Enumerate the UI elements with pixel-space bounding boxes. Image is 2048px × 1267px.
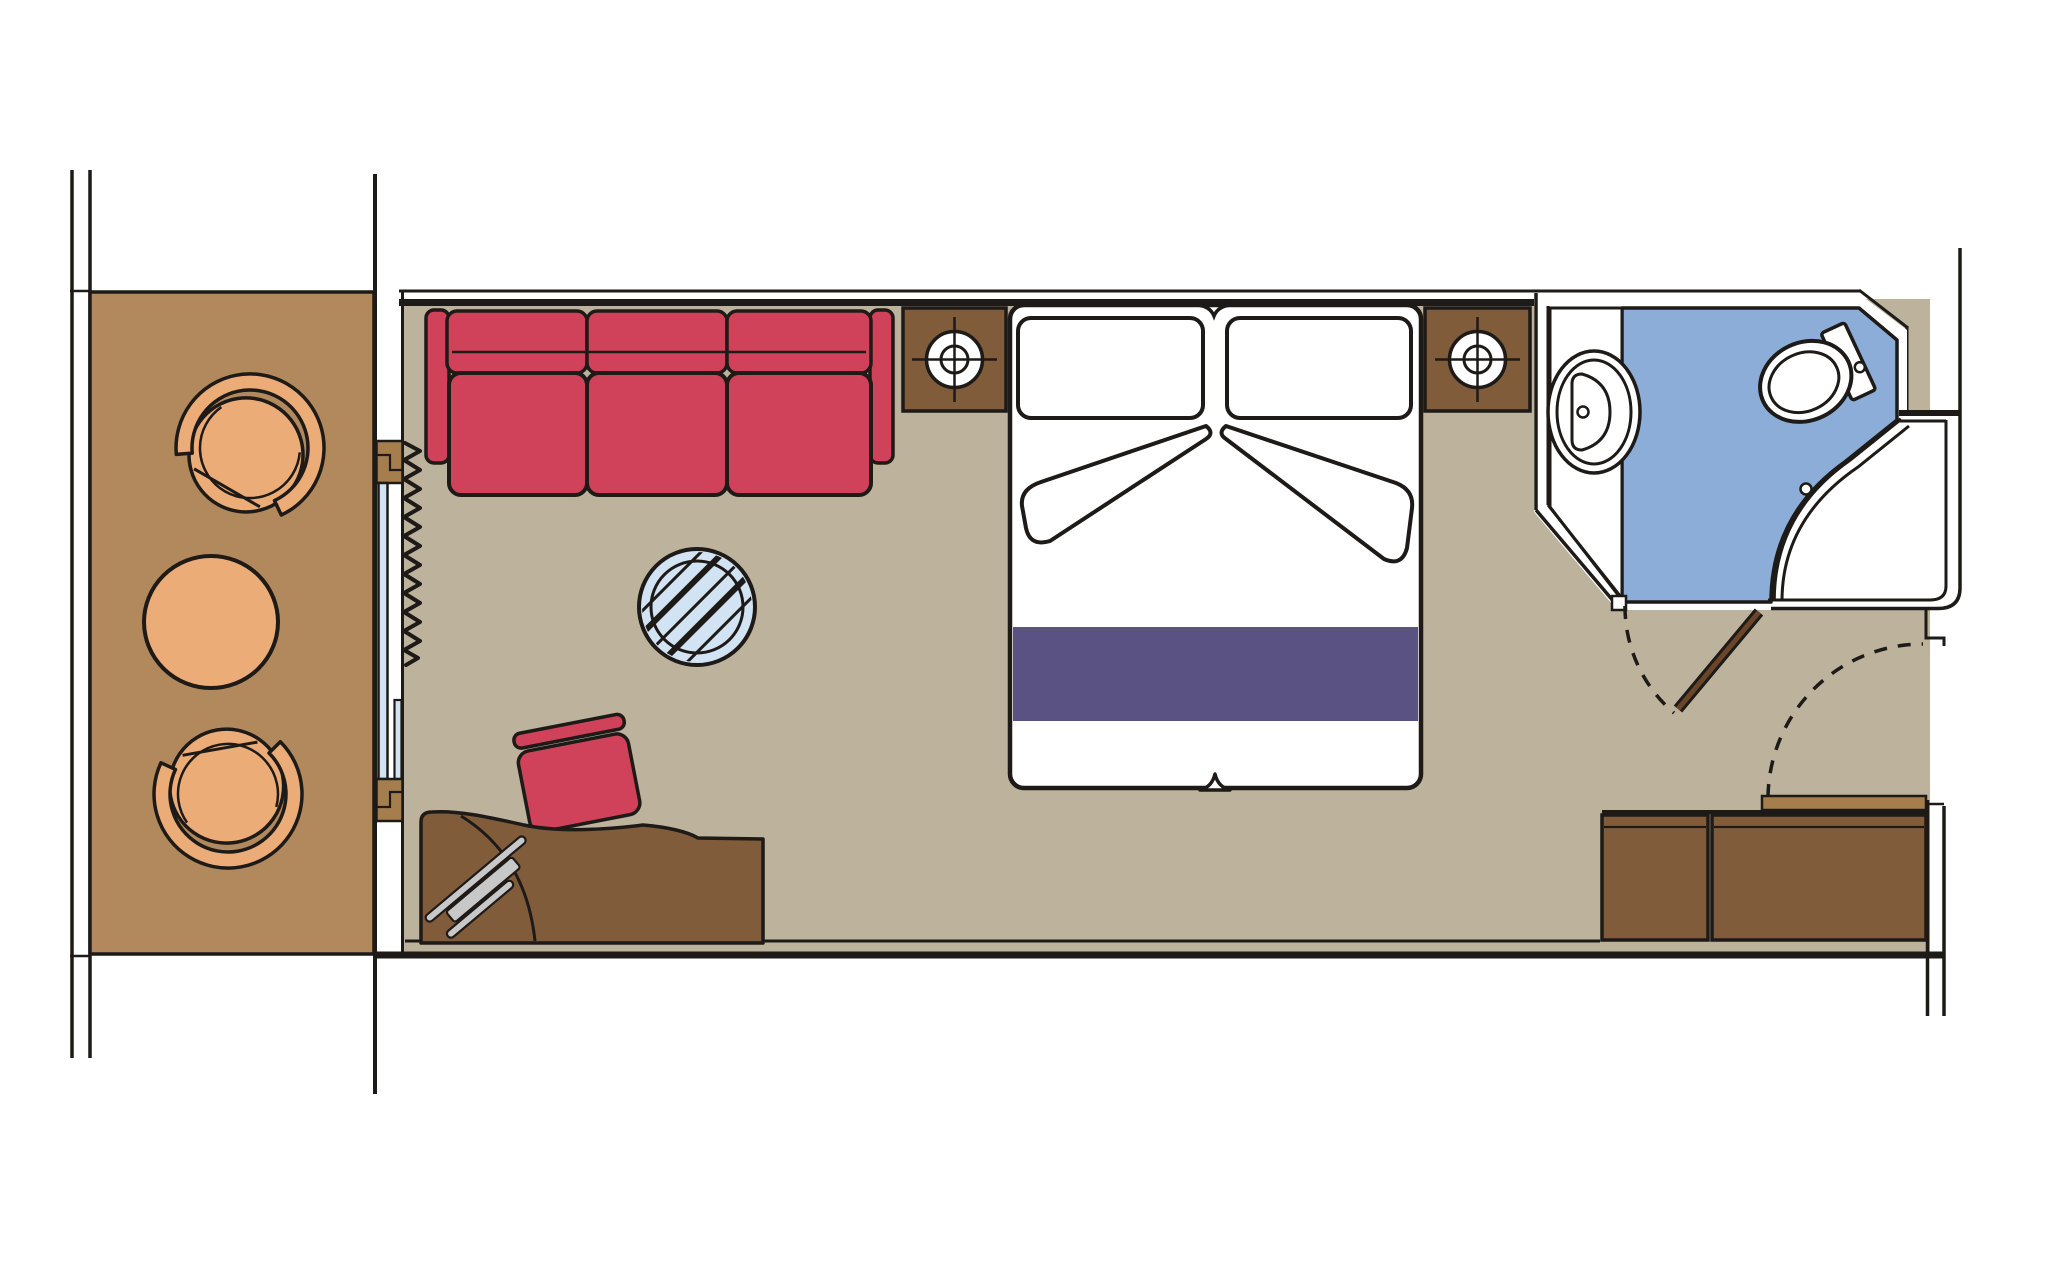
sliding-door-glass	[379, 483, 388, 779]
nightstand-left	[903, 308, 1006, 411]
double-bed	[1010, 305, 1421, 790]
floor-plan-page	[0, 0, 2048, 1267]
nightstand-right	[1425, 308, 1530, 411]
balcony	[90, 292, 374, 954]
wardrobe	[1602, 812, 1926, 940]
balcony-table	[144, 556, 278, 688]
entry-door	[1762, 796, 1926, 810]
sofa	[426, 310, 893, 495]
floor-plan	[0, 0, 2048, 1267]
shower-drain-icon	[1801, 484, 1812, 495]
basin-drain-icon	[1578, 407, 1589, 418]
washbasin	[1548, 351, 1640, 473]
pillow-right	[1227, 318, 1411, 418]
bed-runner	[1013, 627, 1418, 721]
pillow-left	[1018, 318, 1203, 418]
